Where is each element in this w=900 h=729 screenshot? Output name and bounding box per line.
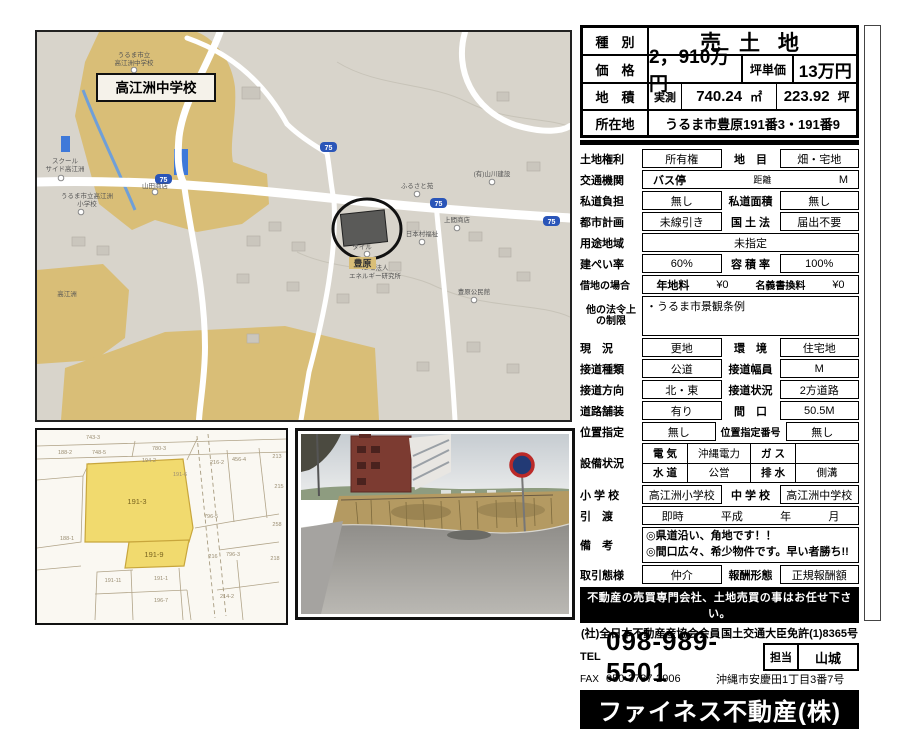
remarks-box: ◎県道沿い、角地です！！ ◎間口広々、希少物件です。早い者勝ち!! bbox=[642, 527, 859, 563]
row-road-paving: 道路舗装 有り 間 口 50.5M bbox=[580, 401, 859, 420]
contact-person-box: 担当 山城 bbox=[763, 643, 859, 671]
road-dark-patch bbox=[447, 530, 491, 540]
row-label: 土地権利 bbox=[580, 149, 642, 168]
poi-label: うるま市立 bbox=[118, 50, 151, 59]
tel-row: TEL 098-989-5501 担当 山城 bbox=[580, 643, 859, 671]
poi-label: 高江洲 bbox=[57, 289, 77, 298]
value-box: 50.5M bbox=[780, 401, 860, 420]
cadastral-map-panel: 191-3 191-9 743-3 188-2 748-5 780-3 194-… bbox=[35, 428, 288, 625]
row-private-road: 私道負担 無し 私道面積 無し bbox=[580, 191, 859, 210]
row-other-regulations: 他の法令上 の制限 ・うるま市景観条例 bbox=[580, 296, 859, 336]
school-label: 高江洲中学校 bbox=[116, 80, 197, 96]
row-label: 都市計画 bbox=[580, 212, 642, 231]
water-value: 公営 bbox=[688, 464, 751, 483]
distance-unit: M bbox=[839, 174, 848, 186]
svg-text:780-3: 780-3 bbox=[152, 446, 166, 452]
row-transaction-type: 取引態様 仲介 報酬形態 正規報酬額 bbox=[580, 565, 859, 584]
svg-text:796-5: 796-5 bbox=[204, 514, 218, 520]
row-road-direction: 接道方向 北・東 接道状況 2方道路 bbox=[580, 380, 859, 399]
type-label: 種 別 bbox=[583, 28, 649, 54]
contact-person-name: 山城 bbox=[799, 645, 857, 669]
row-utilities: 設備状況 電 気 沖縄電力 ガ ス 水 道 公営 排 水 側溝 bbox=[580, 443, 859, 483]
value-box: 高江洲中学校 bbox=[780, 485, 860, 504]
value-box: 未線引き bbox=[642, 212, 722, 231]
svg-text:191-1: 191-1 bbox=[154, 576, 168, 582]
row-remarks: 備 考 ◎県道沿い、角地です！！ ◎間口広々、希少物件です。早い者勝ち!! bbox=[580, 527, 859, 563]
distance-label: 距離 bbox=[753, 173, 771, 186]
row-label: 道路舗装 bbox=[580, 401, 642, 420]
subject-parcel-shape bbox=[340, 210, 387, 246]
svg-text:743-3: 743-3 bbox=[86, 435, 100, 441]
value-box: 60% bbox=[642, 254, 722, 273]
row-label: 私道負担 bbox=[580, 191, 642, 210]
section-divider bbox=[580, 140, 859, 145]
row-label: 中 学 校 bbox=[722, 485, 780, 504]
poi-label: 豊原公民館 bbox=[458, 287, 491, 296]
value-box: 更地 bbox=[642, 338, 722, 357]
svg-text:213: 213 bbox=[272, 454, 281, 460]
row-label-line2: の制限 bbox=[596, 316, 626, 327]
svg-text:214-2: 214-2 bbox=[220, 594, 234, 600]
svg-text:258: 258 bbox=[272, 522, 281, 528]
annual-rent-value: ¥0 bbox=[716, 279, 728, 291]
property-detail-sheet: 種 別 売 土 地 価 格 2，910万円 坪単価 13万円 地 積 実測 74… bbox=[580, 25, 859, 729]
area-tsubo: 223.92 坪 bbox=[777, 84, 856, 109]
row-position-designation: 位置指定 無し 位置指定番号 無し bbox=[580, 422, 859, 441]
electric-value: 沖縄電力 bbox=[688, 444, 751, 463]
svg-text:188-2: 188-2 bbox=[58, 450, 72, 456]
brush-tuft bbox=[391, 504, 451, 520]
row-label: 現 況 bbox=[580, 338, 642, 357]
row-handover: 引 渡 即時 平成 年 月 bbox=[580, 506, 859, 525]
row-label: 容 積 率 bbox=[722, 254, 780, 273]
poi-label: 上間商店 bbox=[444, 215, 471, 224]
summary-table: 種 別 売 土 地 価 格 2，910万円 坪単価 13万円 地 積 実測 74… bbox=[580, 25, 859, 138]
road-surface bbox=[301, 524, 569, 614]
name-change-fee-label: 名義書換料 bbox=[755, 277, 805, 292]
fax-number: 050-3737-2906 bbox=[606, 673, 716, 685]
row-label: 環 境 bbox=[722, 338, 780, 357]
bus-stop-label: バス停 bbox=[653, 172, 686, 188]
row-label: 引 渡 bbox=[580, 506, 642, 525]
row-city-planning: 都市計画 未線引き 国 土 法 届出不要 bbox=[580, 212, 859, 231]
svg-text:191-11: 191-11 bbox=[105, 578, 122, 584]
row-label: 地 目 bbox=[722, 149, 780, 168]
svg-text:796-3: 796-3 bbox=[226, 552, 240, 558]
value-box: 無し bbox=[642, 422, 716, 441]
value-box: 高江洲小学校 bbox=[642, 485, 722, 504]
row-land-rights: 土地権利 所有権 地 目 畑・宅地 bbox=[580, 149, 859, 168]
address-value: うるま市豊原191番3・191番9 bbox=[649, 111, 856, 135]
row-label: 間 口 bbox=[722, 401, 780, 420]
row-label: 用途地域 bbox=[580, 233, 642, 252]
tsubo-unit: 坪 bbox=[838, 88, 850, 105]
poi-label: ふるさと苑 bbox=[401, 181, 434, 190]
value-box: 無し bbox=[780, 191, 860, 210]
area-sqm-value: 740.24 bbox=[696, 88, 742, 105]
row-label: 報酬形態 bbox=[722, 565, 780, 584]
parcel-number-main: 191-3 bbox=[127, 497, 146, 506]
row-road-type: 接道種類 公道 接道幅員 M bbox=[580, 359, 859, 378]
row-label: 私道面積 bbox=[722, 191, 780, 210]
poi-label: うるま市立高江洲 bbox=[61, 191, 113, 200]
svg-text:748-5: 748-5 bbox=[92, 450, 106, 456]
row-label: 接道幅員 bbox=[722, 359, 780, 378]
svg-text:196-7: 196-7 bbox=[154, 598, 168, 604]
address-label: 所在地 bbox=[583, 111, 649, 135]
tel-label: TEL bbox=[580, 651, 606, 663]
remarks-line1: ◎県道沿い、角地です！！ bbox=[646, 529, 777, 545]
value-box: 無し bbox=[642, 191, 722, 210]
fax-label: FAX bbox=[580, 674, 606, 685]
svg-text:456-4: 456-4 bbox=[232, 457, 246, 463]
row-label: 接道方向 bbox=[580, 380, 642, 399]
value-box: 畑・宅地 bbox=[780, 149, 860, 168]
value-box: 仲介 bbox=[642, 565, 722, 584]
svg-text:216: 216 bbox=[208, 554, 217, 560]
svg-text:191-6: 191-6 bbox=[173, 472, 187, 478]
site-photo bbox=[301, 434, 569, 614]
row-leasehold: 借地の場合 年地料 ¥0 名義書換料 ¥0 bbox=[580, 275, 859, 294]
site-photo-panel bbox=[295, 428, 575, 620]
tsubo-unit-price-value: 13万円 bbox=[794, 56, 856, 82]
parcel-number-sub: 191-9 bbox=[144, 550, 163, 559]
contact-person-label: 担当 bbox=[765, 645, 799, 669]
area-sqm: 740.24 ㎡ bbox=[682, 84, 777, 109]
poi-label: 高江洲中学校 bbox=[115, 58, 155, 67]
poi-label: スクール bbox=[52, 157, 79, 165]
gas-label: ガ ス bbox=[751, 444, 796, 463]
tsubo-unit-price-label: 坪単価 bbox=[741, 56, 794, 82]
row-label: 建ぺい率 bbox=[580, 254, 642, 273]
row-area: 地 積 実測 740.24 ㎡ 223.92 坪 bbox=[583, 84, 856, 111]
poi-label: 小学校 bbox=[77, 199, 97, 208]
poi-label: 日本村福祉 bbox=[406, 229, 439, 238]
row-schools: 小 学 校 高江洲小学校 中 学 校 高江洲中学校 bbox=[580, 485, 859, 504]
svg-text:194-2: 194-2 bbox=[142, 458, 156, 464]
price-label: 価 格 bbox=[583, 56, 649, 82]
sales-banner: 不動産の売買専門会社、土地売買の事はお任せ下さい。 bbox=[580, 587, 859, 623]
value-box: 100% bbox=[780, 254, 860, 273]
brush-tuft bbox=[477, 502, 545, 518]
value-box: バス停 距離 M bbox=[642, 170, 859, 189]
row-label: 位置指定 bbox=[580, 422, 642, 441]
value-box: 2方道路 bbox=[780, 380, 860, 399]
handover-era: 平成 bbox=[721, 508, 743, 524]
area-label: 豊原 bbox=[353, 258, 371, 269]
route-map-panel: 75 75 75 75 うるま市立 高江洲中学校 スクール サイド高江洲 うるま… bbox=[35, 30, 572, 422]
route-map: 75 75 75 75 うるま市立 高江洲中学校 スクール サイド高江洲 うるま… bbox=[37, 32, 570, 420]
row-label: 接道種類 bbox=[580, 359, 642, 378]
row-label: 取引態様 bbox=[580, 565, 642, 584]
value-box: 北・東 bbox=[642, 380, 722, 399]
value-box: 届出不要 bbox=[780, 212, 860, 231]
poi-label: 山田商店 bbox=[142, 181, 169, 190]
sqm-unit: ㎡ bbox=[750, 88, 762, 105]
value-box: M bbox=[780, 359, 860, 378]
value-box: 正規報酬額 bbox=[780, 565, 860, 584]
poi-label: サイド高江洲 bbox=[46, 164, 85, 173]
value-box: 住宅地 bbox=[780, 338, 860, 357]
row-label: 他の法令上 の制限 bbox=[580, 296, 642, 336]
handover-year: 年 bbox=[780, 508, 791, 524]
price-value: 2，910万円 bbox=[649, 56, 741, 82]
row-address: 所在地 うるま市豊原191番3・191番9 bbox=[583, 111, 856, 135]
row-price: 価 格 2，910万円 坪単価 13万円 bbox=[583, 56, 856, 84]
row-zoning: 用途地域 未指定 bbox=[580, 233, 859, 252]
name-change-fee-value: ¥0 bbox=[832, 279, 844, 291]
handover-month: 月 bbox=[828, 508, 839, 524]
drainage-label: 排 水 bbox=[751, 464, 796, 483]
annual-rent-label: 年地料 bbox=[656, 277, 689, 293]
value-box: 公道 bbox=[642, 359, 722, 378]
row-label: 交通機関 bbox=[580, 170, 642, 189]
row-label: 設備状況 bbox=[580, 443, 642, 483]
electric-label: 電 気 bbox=[643, 444, 688, 463]
poi-label: タイル bbox=[352, 242, 372, 251]
svg-text:218: 218 bbox=[270, 556, 279, 562]
gas-value bbox=[796, 444, 858, 463]
value-box: 所有権 bbox=[642, 149, 722, 168]
drainage-value: 側溝 bbox=[796, 464, 858, 483]
value-box: 有り bbox=[642, 401, 722, 420]
row-coverage-ratio: 建ぺい率 60% 容 積 率 100% bbox=[580, 254, 859, 273]
poi-label: エネルギー研究所 bbox=[349, 271, 402, 280]
route-shield-number: 75 bbox=[325, 145, 333, 152]
row-label: 国 土 法 bbox=[722, 212, 780, 231]
area-mode: 実測 bbox=[649, 84, 682, 109]
row-label: 借地の場合 bbox=[580, 275, 642, 294]
row-transport: 交通機関 バス停 距離 M bbox=[580, 170, 859, 189]
value-box: 即時 平成 年 月 bbox=[642, 506, 859, 525]
right-margin-strip bbox=[864, 25, 881, 621]
area-tsubo-value: 223.92 bbox=[784, 88, 830, 105]
value-box: ・うるま市景観条例 bbox=[642, 296, 859, 336]
remarks-line2: ◎間口広々、希少物件です。早い者勝ち!! bbox=[646, 545, 849, 561]
row-label: 備 考 bbox=[580, 527, 642, 563]
svg-text:216-2: 216-2 bbox=[210, 460, 224, 466]
svg-text:215: 215 bbox=[274, 484, 283, 490]
road-sign bbox=[511, 454, 533, 476]
poi-label: (有)山川建設 bbox=[474, 169, 511, 178]
handover-immediate: 即時 bbox=[662, 508, 684, 524]
utility-table: 電 気 沖縄電力 ガ ス 水 道 公営 排 水 側溝 bbox=[642, 443, 859, 483]
area-label: 地 積 bbox=[583, 84, 649, 109]
row-label: 接道状況 bbox=[722, 380, 780, 399]
row-current-state: 現 況 更地 環 境 住宅地 bbox=[580, 338, 859, 357]
row-label: 位置指定番号 bbox=[716, 422, 786, 441]
water-label: 水 道 bbox=[643, 464, 688, 483]
svg-text:188-1: 188-1 bbox=[60, 536, 74, 542]
cadastral-map: 191-3 191-9 743-3 188-2 748-5 780-3 194-… bbox=[37, 430, 286, 623]
value-box: 年地料 ¥0 名義書換料 ¥0 bbox=[642, 275, 859, 294]
value-box: 無し bbox=[786, 422, 860, 441]
route-shield-number: 75 bbox=[435, 201, 443, 208]
route-shield-number: 75 bbox=[548, 219, 556, 226]
company-name-bar: ファイネス不動産(株) bbox=[580, 690, 859, 729]
row-label: 小 学 校 bbox=[580, 485, 642, 504]
fax-row: FAX 050-3737-2906 沖縄市安慶田1丁目3番7号 bbox=[580, 671, 859, 687]
office-address: 沖縄市安慶田1丁目3番7号 bbox=[716, 671, 844, 687]
water-rect bbox=[61, 136, 70, 152]
row-label-line1: 他の法令上 bbox=[586, 305, 636, 316]
value-box: 未指定 bbox=[642, 233, 859, 252]
